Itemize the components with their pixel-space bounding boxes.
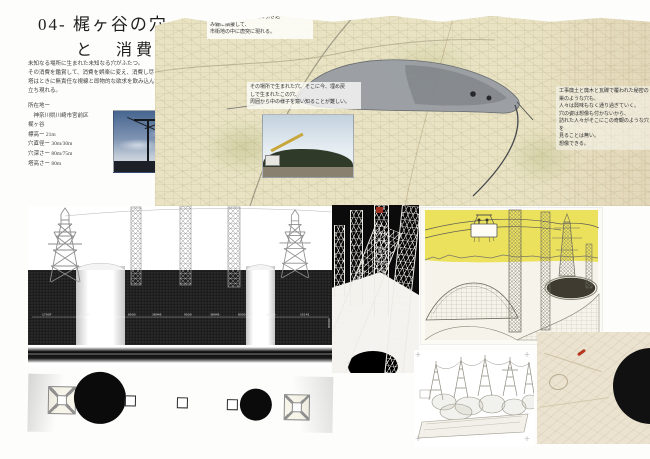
illustration-svg	[421, 208, 602, 344]
map-note-line: み線に隣接して、	[210, 22, 310, 30]
dimension-label: 15141	[300, 313, 310, 317]
topographic-map: 梶ヶ谷の穴は、貨物駅の引き込 み線に隣接して、 市街地の中に唐突に現れる。 その…	[155, 10, 650, 206]
photo-ground	[263, 167, 353, 177]
dimension-label: 8000	[238, 313, 246, 317]
map-note-line: 周囲から中の様子を窺い知ることが難しい。	[250, 99, 358, 107]
gondola-cabin	[471, 224, 497, 237]
ground-block	[275, 270, 333, 345]
pencil-circle	[548, 372, 569, 391]
site-plan	[28, 366, 333, 456]
perspective-illustration	[420, 207, 603, 345]
hole-shaft	[76, 266, 125, 345]
dimension-label: 8000	[128, 313, 136, 317]
hole-drawing	[537, 332, 650, 444]
map-note-line: 梶ヶ谷の穴は、貨物駅の引き込	[210, 14, 310, 22]
lattice-mast	[131, 207, 141, 285]
footing-square	[177, 397, 188, 408]
gondola-person	[486, 219, 489, 222]
gondola-person	[478, 219, 481, 222]
cloud	[118, 139, 158, 151]
airship-dot	[487, 96, 492, 101]
map-note-line: 巣のような穴も、	[559, 96, 650, 104]
sketch-svg	[414, 350, 534, 446]
hole-shaft-top	[76, 263, 125, 270]
illo-tower	[541, 212, 550, 330]
illo-tower	[509, 210, 521, 332]
map-note-line: 市街地の中に唐突に現れる。	[210, 29, 310, 37]
truck-cab	[265, 155, 280, 166]
section-drawing: 17007 30000 8000 38945 9500 38945 8000 3…	[28, 206, 333, 366]
dimension-label: 30000	[266, 313, 276, 317]
dimension-label: 9500	[184, 313, 192, 317]
map-note-topleft: 梶ヶ谷の穴は、貨物駅の引き込 み線に隣接して、 市街地の中に唐突に現れる。	[207, 12, 313, 39]
crane-mast	[147, 119, 149, 167]
cable-line	[65, 209, 331, 216]
illo-tower	[586, 244, 592, 288]
presentation-board: 04- 梶ヶ谷の穴 と 消費の塔 未知なる場所に生まれた未知なる穴がふたつ。 そ…	[0, 0, 650, 459]
board-title-line1: 04- 梶ヶ谷の穴	[38, 10, 168, 35]
lattice-mast	[228, 207, 240, 287]
hole-shaft-top	[246, 265, 275, 270]
model-photo	[332, 205, 419, 373]
hole-plan-small	[240, 388, 273, 421]
dimension-label-vertical: 80000	[327, 318, 331, 328]
section-svg: 17007 30000 8000 38945 9500 38945 8000 3…	[28, 206, 333, 366]
model-tower	[334, 225, 345, 297]
black-hole-circle	[613, 348, 650, 424]
map-note-line: その場所で生まれた穴、そこに今、埋め戻	[250, 84, 358, 92]
pencil-line	[539, 397, 608, 408]
hole-plan-large	[74, 371, 127, 424]
concept-sketch	[414, 350, 534, 446]
pylon-plan-view	[284, 394, 310, 420]
airship-tail-line	[473, 105, 518, 196]
footing-square	[125, 395, 136, 406]
sketch-wires	[436, 359, 529, 369]
model-red-marker	[376, 207, 383, 213]
pylon-plan-view	[48, 386, 76, 414]
dimension-label: 17007	[42, 313, 52, 317]
map-note-line: 想像できる。	[559, 141, 650, 149]
footing-square	[227, 399, 238, 410]
red-marker	[577, 349, 586, 357]
map-note-right: 工事廃土と廃木と瓦礫で覆われた秘密の 巣のような穴も、 人々は興味もなく通り過ぎ…	[556, 86, 650, 150]
sketch-structure	[420, 390, 430, 398]
site-plan-band	[27, 366, 334, 459]
dimension-label: 38945	[210, 313, 220, 317]
pencil-line	[544, 353, 601, 372]
map-note-line: 訪れた人々がそこにこの奇観のような穴を	[559, 118, 650, 133]
dimension-label: 30000	[80, 313, 90, 317]
map-note-line: 人々は興味もなく通り過ぎていく。	[559, 103, 650, 111]
road-band	[28, 347, 333, 363]
dimension-label: 38945	[152, 313, 162, 317]
lattice-mast	[180, 206, 191, 285]
map-note-line: 穴の姿は想像も付かないから、	[559, 111, 650, 119]
site-photo-truck	[262, 114, 354, 178]
pylon-tower	[279, 210, 310, 278]
map-note-line: 工事廃土と廃木と瓦礫で覆われた秘密の	[559, 88, 650, 96]
airship-dot	[470, 91, 476, 97]
map-photo-caption: その場所で生まれた穴、そこに今、埋め戻 しで生まれたこの穴、 周囲から中の様子を…	[247, 82, 361, 109]
hole-shaft	[246, 266, 275, 345]
map-note-line: しで生まれたこの穴、	[250, 92, 358, 100]
airship-tail-line	[517, 102, 533, 120]
map-note-line: 見ることは無い。	[559, 133, 650, 141]
